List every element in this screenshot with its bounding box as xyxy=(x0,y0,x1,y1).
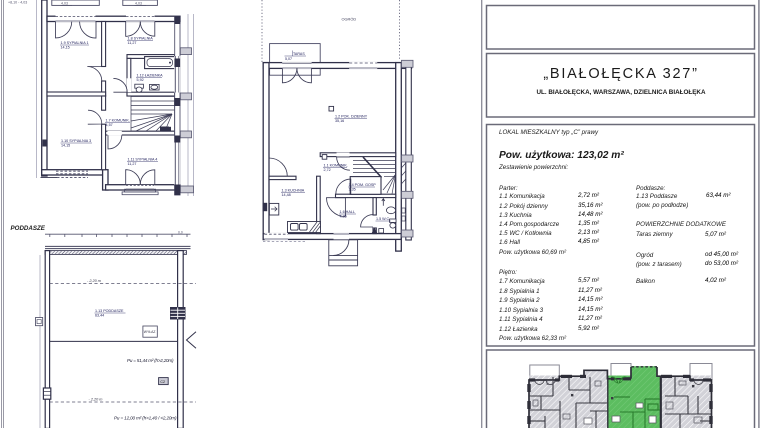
svg-text:4,03: 4,03 xyxy=(135,2,142,6)
svg-text:1.3 KUCHNIA: 1.3 KUCHNIA xyxy=(282,189,305,193)
svg-text:- 2,20 m: - 2,20 m xyxy=(87,279,101,283)
svg-text:14,15: 14,15 xyxy=(61,144,70,148)
svg-text:1.5 W.C.: 1.5 W.C. xyxy=(376,217,390,221)
svg-text:1.11 SYPIALNIA 4: 1.11 SYPIALNIA 4 xyxy=(128,158,158,162)
svg-text:1.7 KOMUNIK.: 1.7 KOMUNIK. xyxy=(106,119,130,123)
svg-text:2,72: 2,72 xyxy=(324,168,331,172)
svg-text:WYŁAZ: WYŁAZ xyxy=(144,330,156,334)
svg-text:1.9 SYPIALNIA 1: 1.9 SYPIALNIA 1 xyxy=(61,41,89,45)
svg-text:1.8 SYPIALNIA: 1.8 SYPIALNIA xyxy=(128,37,154,41)
svg-text:1.4 POM. GOSP: 1.4 POM. GOSP xyxy=(349,183,377,187)
svg-text:1.6 HALL: 1.6 HALL xyxy=(340,210,355,214)
svg-text:4,57: 4,57 xyxy=(106,123,113,127)
svg-text:+8,10 - 4,03: +8,10 - 4,03 xyxy=(8,0,27,4)
svg-text:1.12 ŁAZIENKA: 1.12 ŁAZIENKA xyxy=(137,74,164,78)
svg-text:4,03: 4,03 xyxy=(61,2,68,6)
svg-text:OGRÓD: OGRÓD xyxy=(342,17,357,22)
svg-text:5,07: 5,07 xyxy=(285,57,292,61)
svg-text:Pu = 12,00 m² (h>1,40 / <2,20m: Pu = 12,00 m² (h>1,40 / <2,20m) xyxy=(114,416,177,421)
svg-text:5,92: 5,92 xyxy=(137,78,144,82)
svg-text:1,35: 1,35 xyxy=(349,188,356,192)
svg-text:14,15: 14,15 xyxy=(61,46,70,50)
svg-text:- 2,20 m: - 2,20 m xyxy=(89,398,103,402)
svg-text:C2: C2 xyxy=(160,380,165,384)
svg-text:35,16: 35,16 xyxy=(335,119,344,123)
svg-text:1.10 SYPIALNIA 3: 1.10 SYPIALNIA 3 xyxy=(61,139,91,143)
svg-text:4,85: 4,85 xyxy=(340,215,347,219)
svg-text:14,48: 14,48 xyxy=(282,193,291,197)
svg-text:TARAS: TARAS xyxy=(293,52,305,56)
svg-text:1.13 PODDASZE: 1.13 PODDASZE xyxy=(95,309,124,313)
svg-text:Pu = 51,44 m² (h>2,20m): Pu = 51,44 m² (h>2,20m) xyxy=(127,358,174,363)
svg-text:63,44: 63,44 xyxy=(95,314,104,318)
svg-text:0,0: 0,0 xyxy=(178,230,183,234)
svg-text:11,27: 11,27 xyxy=(128,162,137,166)
svg-text:11,27: 11,27 xyxy=(128,41,137,45)
svg-text:1.1 KOMUNIK.: 1.1 KOMUNIK. xyxy=(324,164,348,168)
svg-text:1.2 POK. DZIENNY: 1.2 POK. DZIENNY xyxy=(335,115,368,119)
